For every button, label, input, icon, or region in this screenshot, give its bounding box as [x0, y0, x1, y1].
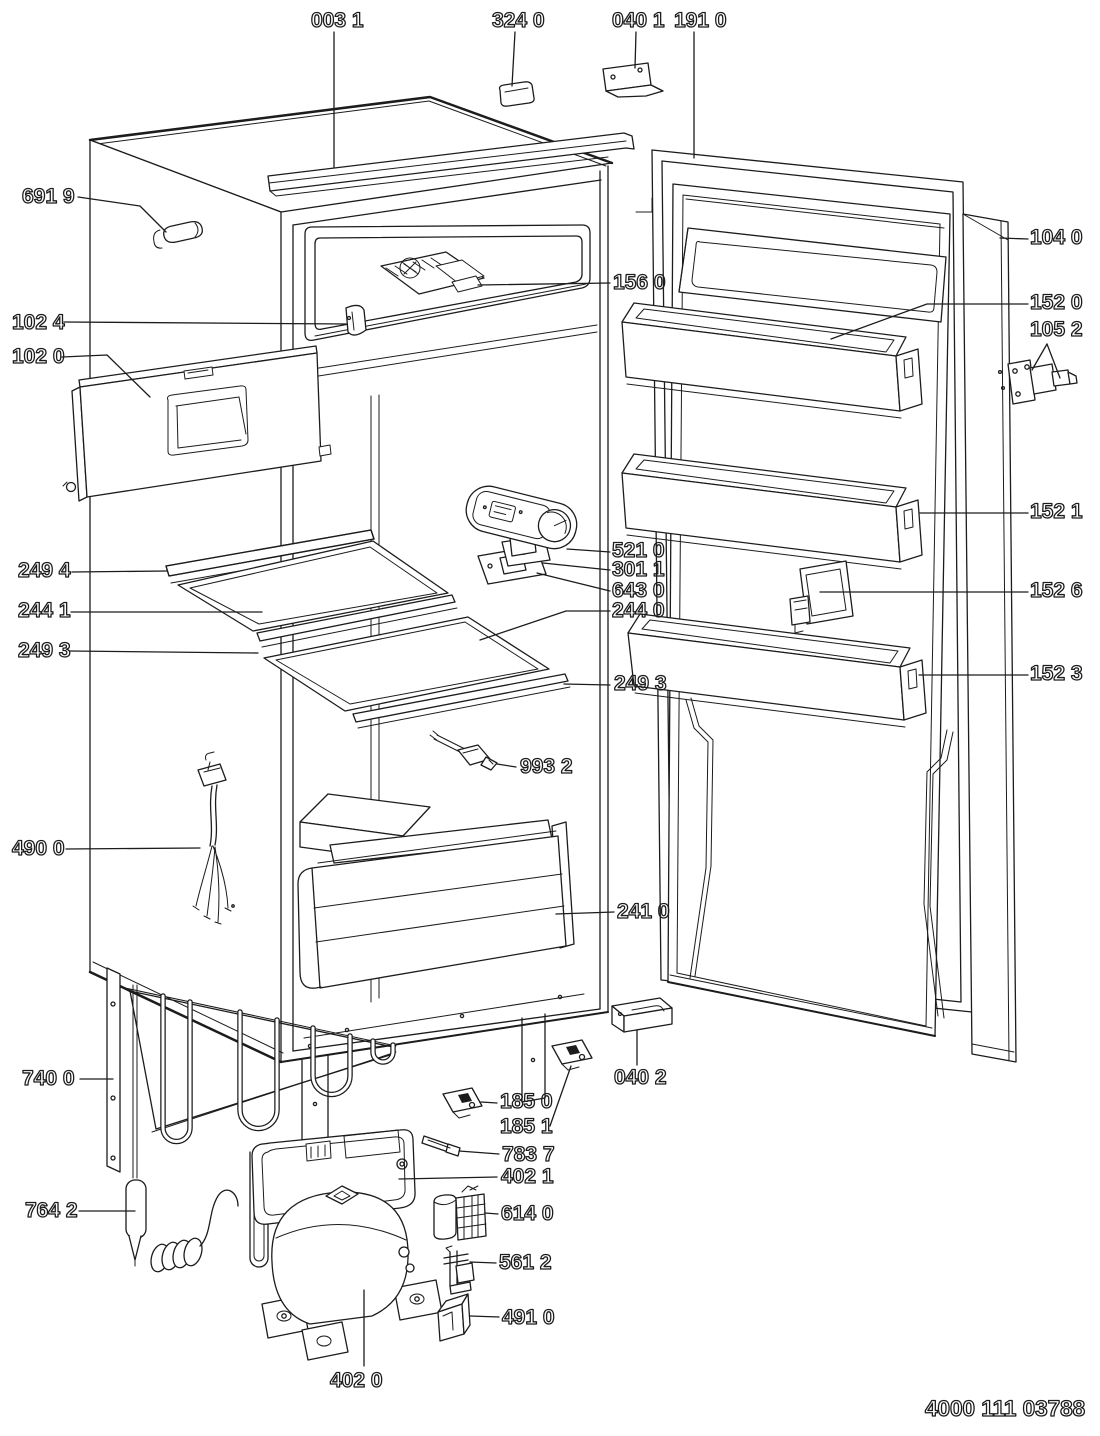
part-label-993-2: 993 2	[520, 755, 573, 778]
leader-185-1	[550, 1066, 571, 1126]
part-label-490-0: 490 0	[12, 837, 65, 860]
part-label-249-3-left: 249 3	[18, 639, 71, 662]
door	[622, 150, 1077, 1062]
leader-324-0	[512, 32, 515, 86]
part-label-244-1: 244 1	[18, 599, 71, 622]
document-number: 4000 111 03788	[925, 1396, 1085, 1421]
part-label-104-0: 104 0	[1030, 226, 1083, 249]
leader-244-0	[480, 611, 610, 640]
bottom-hinge-bracket-part	[612, 998, 672, 1032]
part-label-003-1: 003 1	[311, 9, 364, 32]
part-label-102-4: 102 4	[12, 311, 65, 334]
leader-491-0	[470, 1316, 499, 1317]
part-label-691-9: 691 9	[22, 185, 75, 208]
cabinet	[63, 63, 672, 1360]
part-label-783-7: 783 7	[502, 1143, 555, 1166]
part-label-185-0: 185 0	[500, 1090, 553, 1113]
part-label-614-0: 614 0	[501, 1202, 554, 1225]
compressor-part	[262, 1186, 442, 1360]
part-label-102-0: 102 0	[12, 345, 65, 368]
part-label-152-3: 152 3	[1030, 662, 1083, 685]
hinge-pin-set-part	[999, 360, 1077, 404]
leader-993-2	[497, 764, 516, 767]
part-label-324-0: 324 0	[492, 9, 545, 32]
overload-protector-part	[444, 1246, 474, 1294]
part-label-191-0: 191 0	[674, 9, 727, 32]
latch-plate-a-part	[443, 1088, 482, 1118]
leader-185-0	[481, 1102, 497, 1103]
part-label-740-0: 740 0	[22, 1067, 75, 1090]
part-label-249-3-right: 249 3	[614, 672, 667, 695]
part-label-249-4: 249 4	[18, 559, 71, 582]
leader-614-0	[485, 1213, 498, 1214]
part-label-244-0: 244 0	[612, 599, 665, 622]
diagram-artwork: 003 1324 0040 1191 0691 9102 4102 0249 4…	[0, 0, 1100, 1436]
part-label-156-0: 156 0	[613, 271, 666, 294]
part-label-105-2: 105 2	[1030, 318, 1083, 341]
part-label-402-1: 402 1	[501, 1165, 554, 1188]
leader-643-0	[537, 573, 610, 591]
leader-783-7	[459, 1151, 499, 1154]
part-label-491-0: 491 0	[502, 1306, 555, 1329]
leader-561-2	[470, 1262, 496, 1263]
part-label-561-2: 561 2	[499, 1251, 552, 1274]
part-label-040-1: 040 1	[612, 9, 665, 32]
part-label-402-0: 402 0	[330, 1369, 383, 1392]
temperature-sensor-part	[430, 731, 497, 770]
flap-clip-part	[346, 305, 366, 335]
terminal-cover-part	[438, 1294, 470, 1341]
part-label-185-1: 185 1	[500, 1115, 553, 1138]
part-label-040-2: 040 2	[614, 1066, 667, 1089]
spacer-chip-part	[500, 82, 535, 106]
crisper-drawer-part	[298, 820, 574, 988]
part-label-241-0: 241 0	[617, 900, 670, 923]
hinge-pin-part	[422, 1136, 460, 1156]
freezer-compartment	[293, 225, 597, 380]
exploded-parts-diagram: 003 1324 0040 1191 0691 9102 4102 0249 4…	[0, 0, 1100, 1436]
part-label-764-2: 764 2	[25, 1199, 78, 1222]
part-label-152-6: 152 6	[1030, 579, 1083, 602]
part-label-301-1: 301 1	[612, 558, 665, 581]
leader-249-3-right	[564, 684, 610, 685]
start-relay-part	[434, 1186, 486, 1240]
latch-plate-b-part	[552, 1040, 592, 1070]
thermostat-assembly	[462, 482, 582, 584]
leader-521-0	[567, 549, 610, 552]
door-outer-panel-part	[963, 214, 1016, 1062]
leader-040-1	[635, 32, 636, 68]
part-label-152-0: 152 0	[1030, 291, 1083, 314]
top-hinge-bracket-part	[603, 63, 663, 97]
part-label-152-1: 152 1	[1030, 500, 1083, 523]
